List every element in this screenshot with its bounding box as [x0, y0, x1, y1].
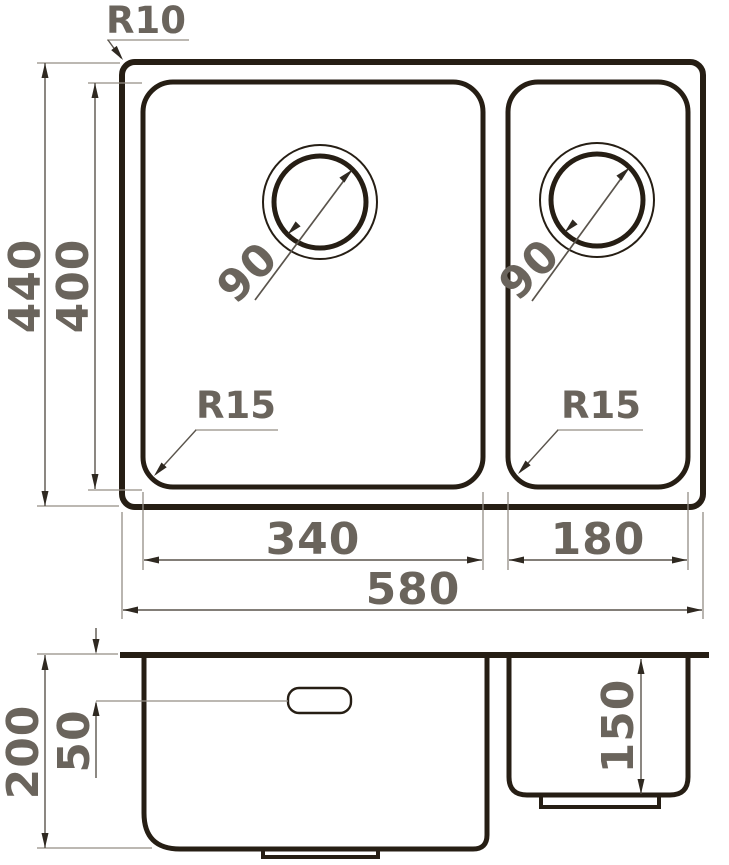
arrowhead — [638, 779, 645, 794]
overflow-hole — [288, 688, 351, 713]
top-view: 90 90 R10 R15 R15 — [0, 0, 703, 619]
right-bowl-radius-callout: R15 — [518, 384, 643, 474]
left-bowl-width-value: 340 — [266, 514, 361, 565]
drawing-canvas: 90 90 R10 R15 R15 — [0, 0, 729, 865]
arrowhead — [638, 659, 645, 674]
left-drain: 90 — [207, 145, 377, 313]
left-bowl-outline — [143, 82, 483, 487]
arrowhead — [467, 557, 482, 564]
right-drain-outer-circle — [540, 143, 654, 257]
left-bowl-profile — [144, 655, 487, 849]
overall-width-value: 580 — [366, 564, 461, 615]
outer-radius-callout: R10 — [106, 0, 189, 60]
arrowhead — [339, 170, 352, 183]
left-bowl-radius-callout: R15 — [154, 384, 278, 476]
right-bowl-depth-dimension: 150 — [593, 659, 645, 794]
outer-radius-label: R10 — [106, 0, 186, 42]
left-drain-outer-circle — [263, 145, 377, 259]
arrowhead — [565, 219, 578, 232]
arrowhead — [42, 833, 49, 848]
arrowhead — [123, 607, 138, 614]
arrowhead — [42, 491, 49, 506]
overflow-offset-dimension: 50 — [49, 628, 100, 778]
inner-depth-value: 400 — [48, 239, 99, 334]
sink-outer-outline — [122, 62, 703, 507]
sink-technical-drawing: 90 90 R10 R15 R15 — [0, 0, 729, 865]
overflow-offset-value: 50 — [49, 709, 100, 772]
right-bowl-width-dimension: 180 — [508, 492, 688, 570]
arrowhead — [509, 557, 524, 564]
left-drain-diameter-label: 90 — [207, 232, 288, 313]
section-view: 200 50 150 — [0, 628, 709, 857]
overall-height-value: 200 — [0, 705, 49, 800]
inner-depth-dimension: 400 — [48, 83, 142, 490]
arrowhead — [144, 557, 159, 564]
arrowhead — [616, 168, 629, 181]
arrowhead — [92, 83, 99, 98]
arrowhead — [93, 639, 100, 654]
arrowhead — [687, 607, 702, 614]
right-drain: 90 — [489, 143, 654, 310]
arrowhead — [42, 655, 49, 670]
arrowhead — [672, 557, 687, 564]
left-bowl-width-dimension: 340 — [143, 492, 483, 570]
overall-depth-value: 440 — [0, 239, 51, 334]
right-bowl-width-value: 180 — [551, 514, 646, 565]
right-bowl-radius-label: R15 — [561, 384, 641, 427]
arrowhead — [288, 221, 301, 234]
arrowhead — [92, 474, 99, 489]
left-bowl-radius-label: R15 — [196, 384, 276, 427]
right-bowl-depth-value: 150 — [593, 679, 644, 774]
arrowhead — [42, 63, 49, 78]
